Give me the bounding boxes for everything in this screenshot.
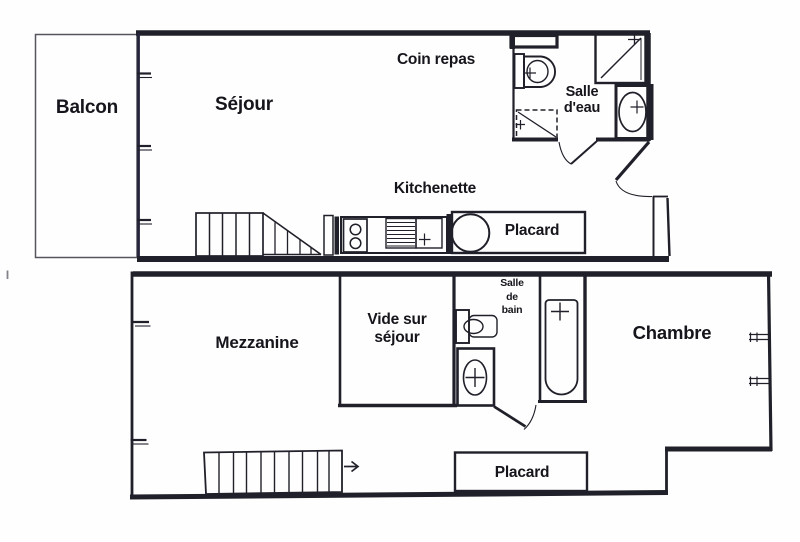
- stove-fixture: [344, 219, 368, 252]
- shower-fixture: [596, 34, 646, 84]
- label-sejour: Séjour: [199, 94, 289, 115]
- washbasin-fixture-lower: [458, 349, 495, 406]
- balcony-outline: [36, 35, 138, 258]
- label-kitchenette: Kitchenette: [387, 180, 483, 198]
- label-salle-eau: Salle d'eau: [556, 84, 608, 117]
- stairs-direction-arrow: [344, 462, 358, 472]
- window-marks-mezzanine: [131, 322, 151, 444]
- water-heater-dashed: [516, 110, 558, 139]
- floor-plan-page: Balcon Séjour Coin repas Kitchenette Sal…: [0, 0, 800, 542]
- kitchenette-counter: [324, 214, 452, 255]
- floor-plan-drawing: [0, 0, 800, 542]
- kitchen-sink-fixture: [386, 219, 442, 249]
- upper-floor-plan: [36, 33, 670, 261]
- label-coin-repas: Coin repas: [390, 51, 482, 69]
- staircase-lower: [204, 451, 358, 495]
- bathtub-fixture: [546, 300, 578, 395]
- toilet-fixture-lower: [456, 310, 497, 343]
- label-balcon: Balcon: [47, 97, 127, 118]
- lower-floor-plan: [8, 271, 773, 499]
- salle-eau-door-swing-arc: [559, 142, 571, 164]
- cabinet-fixture: [511, 36, 557, 48]
- staircase-upper: [196, 213, 321, 256]
- entry-door-swing-arc: [616, 181, 652, 197]
- lower-exterior-walls: [8, 271, 773, 499]
- label-placard-lower: Placard: [486, 464, 558, 482]
- salle-eau-door: [571, 141, 597, 164]
- label-placard-upper: Placard: [496, 222, 568, 240]
- window-marks-chambre: [749, 333, 771, 387]
- label-mezzanine: Mezzanine: [206, 333, 308, 352]
- label-salle-de-bain: Salle de bain: [497, 277, 527, 318]
- toilet-fixture-upper: [515, 54, 556, 88]
- entry-angled-wall: [616, 142, 649, 180]
- fridge-fixture: [452, 214, 490, 252]
- bathroom-door: [494, 405, 536, 430]
- label-vide-sur-sejour: Vide sur séjour: [355, 311, 439, 346]
- label-chambre: Chambre: [620, 323, 724, 344]
